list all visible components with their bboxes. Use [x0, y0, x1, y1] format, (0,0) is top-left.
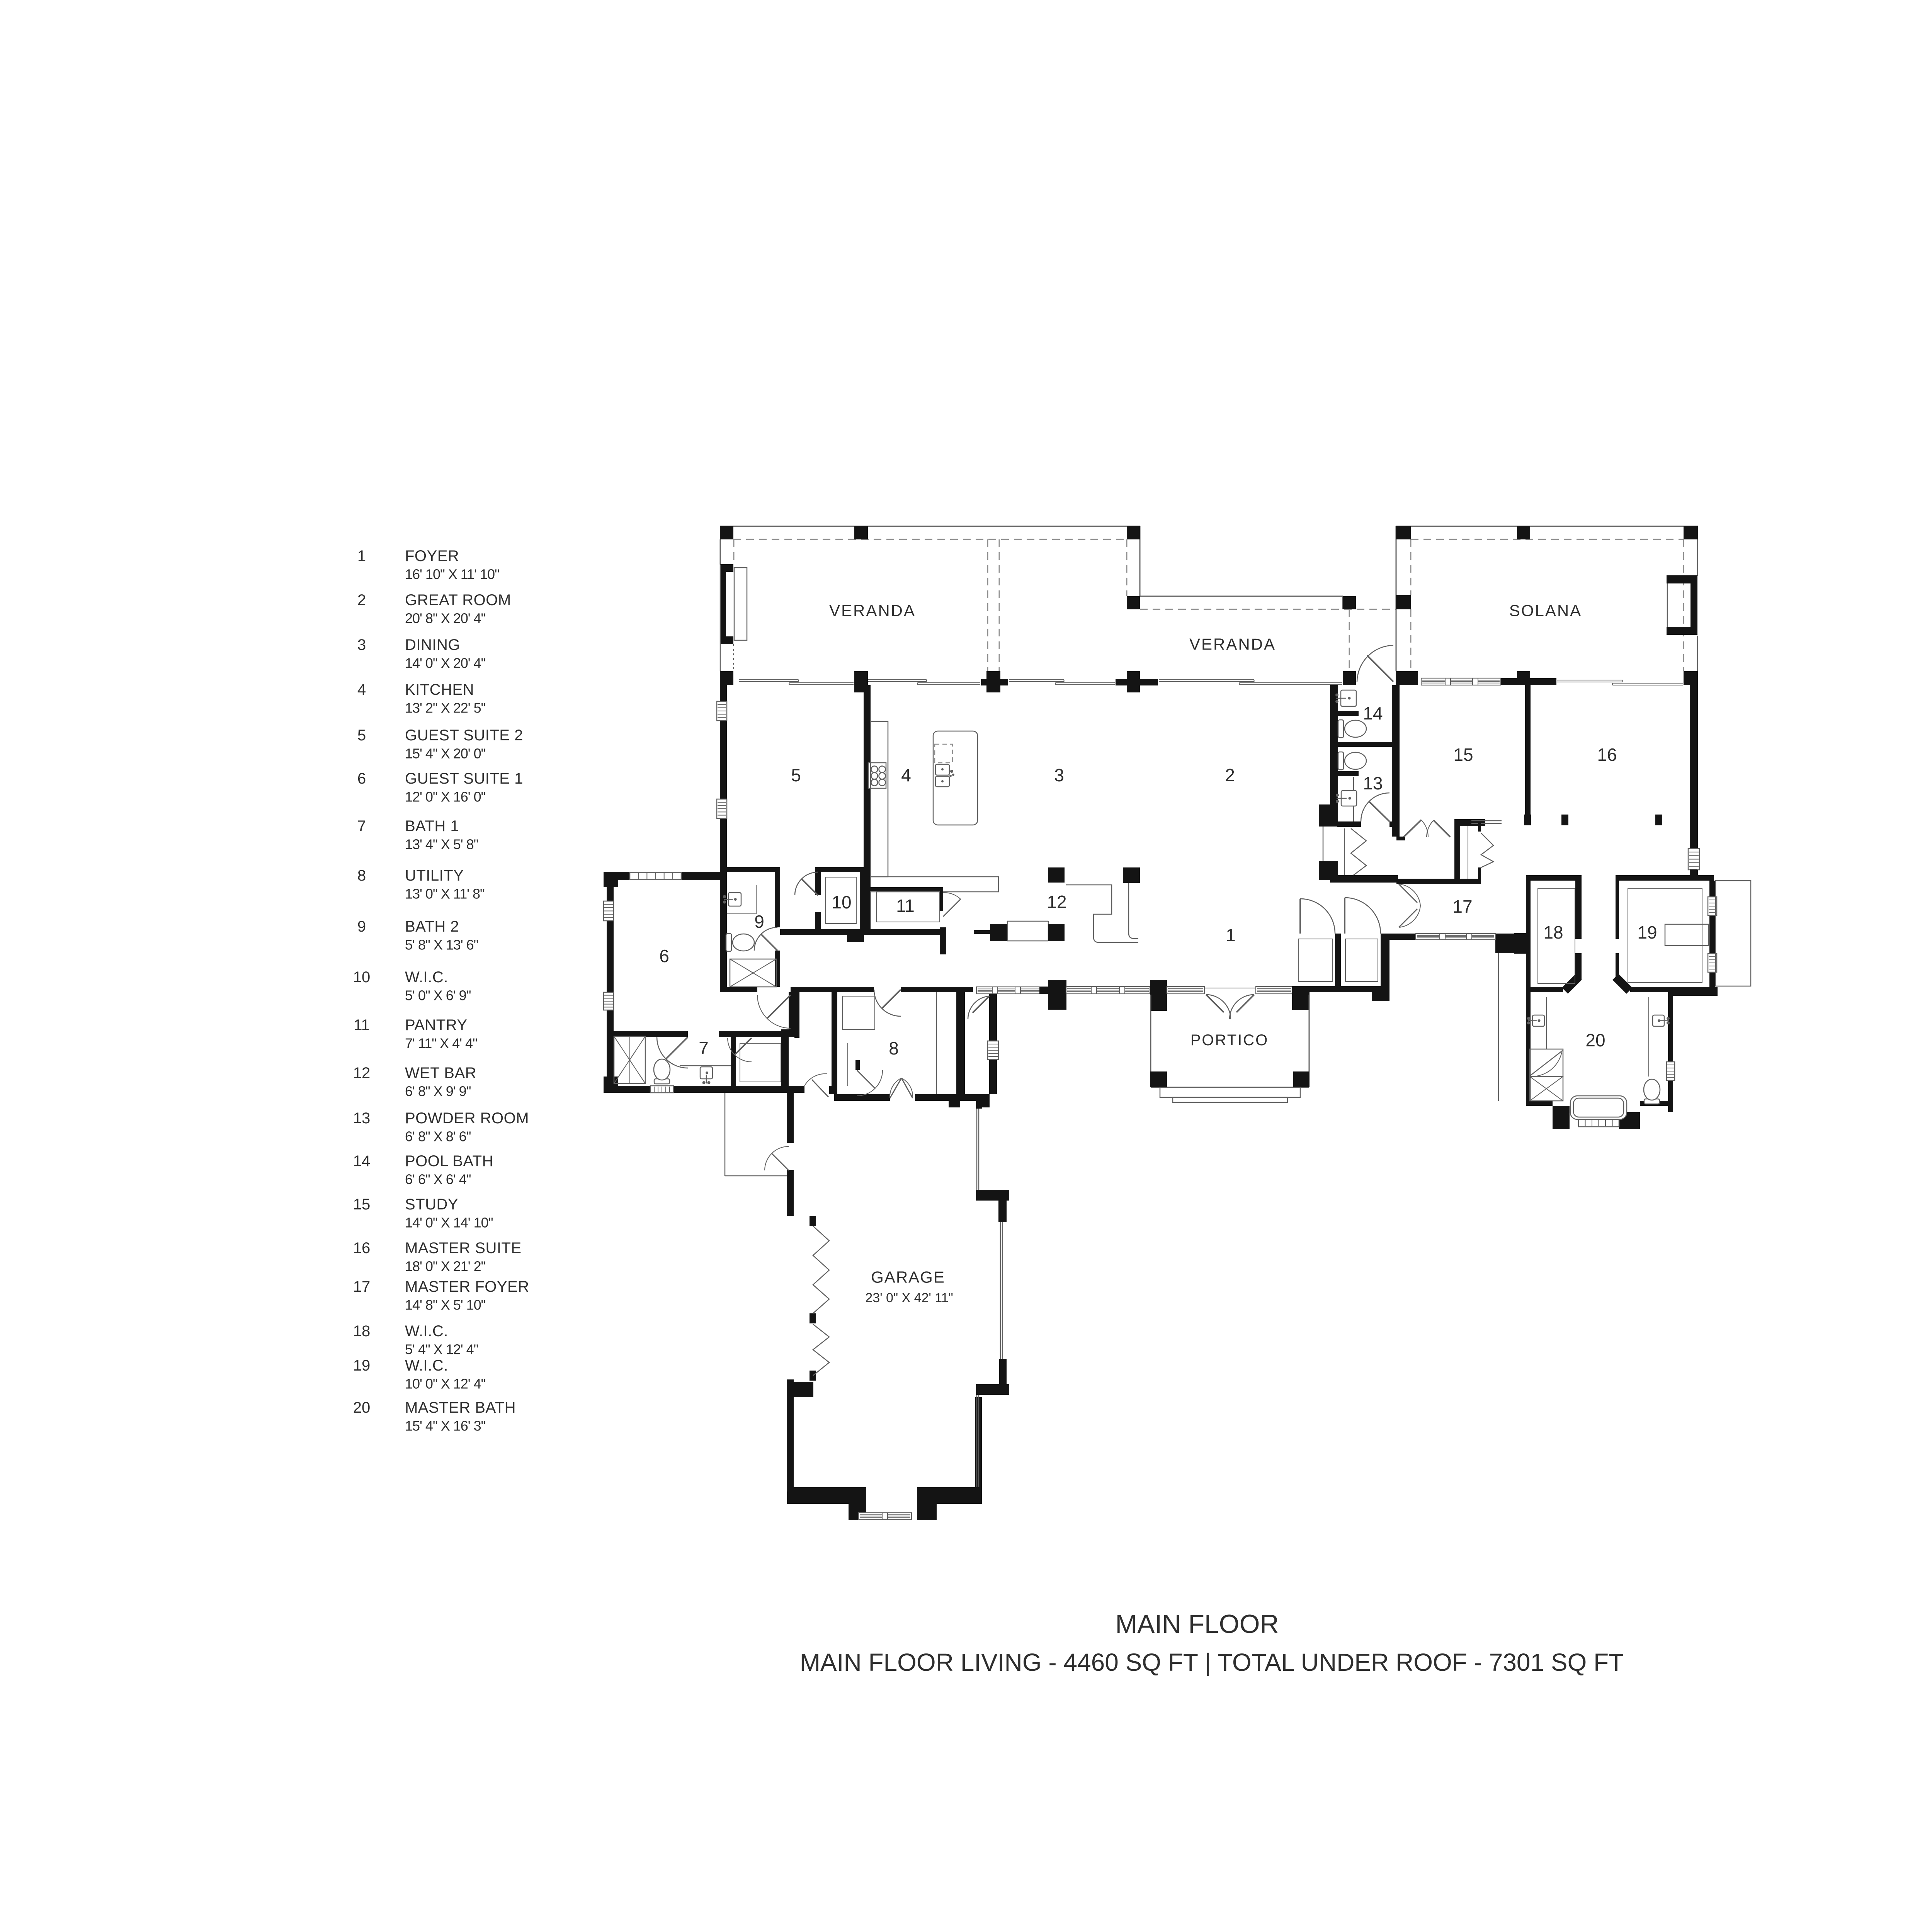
svg-text:23' 0" X 42' 11": 23' 0" X 42' 11" — [865, 1291, 953, 1305]
svg-text:12' 0" X 16' 0": 12' 0" X 16' 0" — [405, 789, 486, 805]
svg-text:2: 2 — [357, 592, 366, 609]
svg-text:7' 11" X 4' 4": 7' 11" X 4' 4" — [405, 1036, 477, 1051]
svg-text:PANTRY: PANTRY — [405, 1017, 468, 1034]
svg-text:DINING: DINING — [405, 636, 460, 653]
svg-text:1: 1 — [1226, 925, 1236, 945]
svg-text:KITCHEN: KITCHEN — [405, 681, 474, 698]
svg-text:13: 13 — [1363, 773, 1383, 793]
svg-text:16' 10" X 11' 10": 16' 10" X 11' 10" — [405, 566, 499, 582]
svg-text:3: 3 — [1054, 765, 1064, 785]
svg-text:6' 6" X 6' 4": 6' 6" X 6' 4" — [405, 1172, 471, 1187]
svg-text:5' 8" X 13' 6": 5' 8" X 13' 6" — [405, 937, 478, 953]
svg-text:7: 7 — [357, 818, 366, 835]
svg-text:18: 18 — [353, 1323, 371, 1340]
svg-text:SOLANA: SOLANA — [1509, 602, 1582, 620]
svg-text:8: 8 — [889, 1038, 899, 1058]
svg-text:BATH 2: BATH 2 — [405, 918, 459, 935]
svg-text:20: 20 — [1585, 1030, 1605, 1050]
svg-text:13' 0" X 11' 8": 13' 0" X 11' 8" — [405, 886, 485, 902]
svg-text:VERANDA: VERANDA — [1189, 635, 1276, 653]
svg-text:GUEST SUITE 2: GUEST SUITE 2 — [405, 727, 523, 744]
svg-text:BATH 1: BATH 1 — [405, 818, 459, 835]
svg-text:5: 5 — [357, 727, 366, 744]
svg-text:MASTER FOYER: MASTER FOYER — [405, 1278, 529, 1295]
svg-text:14' 0" X 20' 4": 14' 0" X 20' 4" — [405, 655, 486, 671]
svg-text:11: 11 — [354, 1017, 370, 1034]
svg-text:18: 18 — [1543, 922, 1563, 942]
svg-text:10' 0" X 12' 4": 10' 0" X 12' 4" — [405, 1376, 486, 1392]
svg-text:2: 2 — [1225, 765, 1235, 785]
svg-text:19: 19 — [353, 1357, 371, 1374]
svg-text:14' 0" X 14' 10": 14' 0" X 14' 10" — [405, 1215, 493, 1231]
svg-text:W.I.C.: W.I.C. — [405, 1323, 448, 1340]
svg-text:POOL BATH: POOL BATH — [405, 1153, 493, 1170]
svg-text:15: 15 — [1453, 745, 1473, 765]
svg-text:10: 10 — [832, 892, 851, 912]
svg-text:GARAGE: GARAGE — [871, 1268, 945, 1286]
svg-text:6' 8" X 8' 6": 6' 8" X 8' 6" — [405, 1129, 471, 1145]
svg-text:16: 16 — [1597, 745, 1617, 765]
svg-text:14' 8" X 5' 10": 14' 8" X 5' 10" — [405, 1297, 486, 1313]
svg-text:20: 20 — [353, 1399, 371, 1416]
svg-text:13' 2" X 22' 5": 13' 2" X 22' 5" — [405, 700, 486, 716]
svg-text:6: 6 — [357, 770, 366, 787]
svg-text:PORTICO: PORTICO — [1190, 1032, 1269, 1049]
svg-text:MASTER BATH: MASTER BATH — [405, 1399, 516, 1416]
svg-text:1: 1 — [357, 548, 366, 565]
svg-text:16: 16 — [353, 1240, 371, 1257]
svg-text:13: 13 — [353, 1110, 371, 1127]
svg-text:POWDER ROOM: POWDER ROOM — [405, 1110, 529, 1127]
svg-text:18' 0" X 21' 2": 18' 0" X 21' 2" — [405, 1259, 486, 1274]
svg-text:VERANDA: VERANDA — [829, 602, 916, 620]
svg-text:5: 5 — [791, 765, 801, 785]
svg-text:8: 8 — [357, 867, 366, 884]
svg-text:14: 14 — [1363, 703, 1383, 723]
svg-text:11: 11 — [896, 896, 915, 916]
svg-text:FOYER: FOYER — [405, 548, 459, 565]
svg-text:GREAT ROOM: GREAT ROOM — [405, 592, 511, 609]
svg-text:GUEST SUITE 1: GUEST SUITE 1 — [405, 770, 523, 787]
svg-text:W.I.C.: W.I.C. — [405, 969, 448, 986]
svg-text:6' 8" X 9' 9": 6' 8" X 9' 9" — [405, 1083, 471, 1099]
svg-text:W.I.C.: W.I.C. — [405, 1357, 448, 1374]
svg-text:9: 9 — [754, 912, 764, 932]
svg-text:MAIN FLOOR LIVING - 4460 SQ FT: MAIN FLOOR LIVING - 4460 SQ FT | TOTAL U… — [800, 1648, 1624, 1676]
svg-text:4: 4 — [901, 765, 911, 785]
svg-text:5' 4" X 12' 4": 5' 4" X 12' 4" — [405, 1342, 478, 1357]
svg-text:13' 4" X 5' 8": 13' 4" X 5' 8" — [405, 837, 478, 852]
svg-text:15: 15 — [353, 1196, 371, 1213]
svg-text:6: 6 — [659, 946, 669, 966]
svg-text:4: 4 — [357, 681, 366, 698]
svg-text:9: 9 — [357, 918, 366, 935]
svg-text:WET BAR: WET BAR — [405, 1065, 476, 1082]
svg-text:STUDY: STUDY — [405, 1196, 458, 1213]
svg-text:12: 12 — [353, 1065, 371, 1082]
svg-text:MAIN FLOOR: MAIN FLOOR — [1115, 1609, 1279, 1639]
svg-text:17: 17 — [353, 1278, 371, 1295]
svg-text:15' 4" X 16' 3": 15' 4" X 16' 3" — [405, 1418, 486, 1434]
svg-text:MASTER SUITE: MASTER SUITE — [405, 1240, 522, 1257]
svg-text:10: 10 — [353, 969, 371, 986]
svg-text:12: 12 — [1047, 892, 1066, 912]
svg-text:5' 0" X 6' 9": 5' 0" X 6' 9" — [405, 988, 471, 1003]
svg-text:19: 19 — [1637, 922, 1657, 942]
svg-text:7: 7 — [699, 1038, 709, 1058]
svg-text:20' 8" X 20' 4": 20' 8" X 20' 4" — [405, 611, 486, 626]
svg-text:14: 14 — [353, 1153, 371, 1170]
svg-text:15' 4" X 20' 0": 15' 4" X 20' 0" — [405, 746, 486, 762]
svg-text:UTILITY: UTILITY — [405, 867, 464, 884]
svg-text:3: 3 — [357, 636, 366, 653]
svg-text:17: 17 — [1452, 896, 1472, 917]
